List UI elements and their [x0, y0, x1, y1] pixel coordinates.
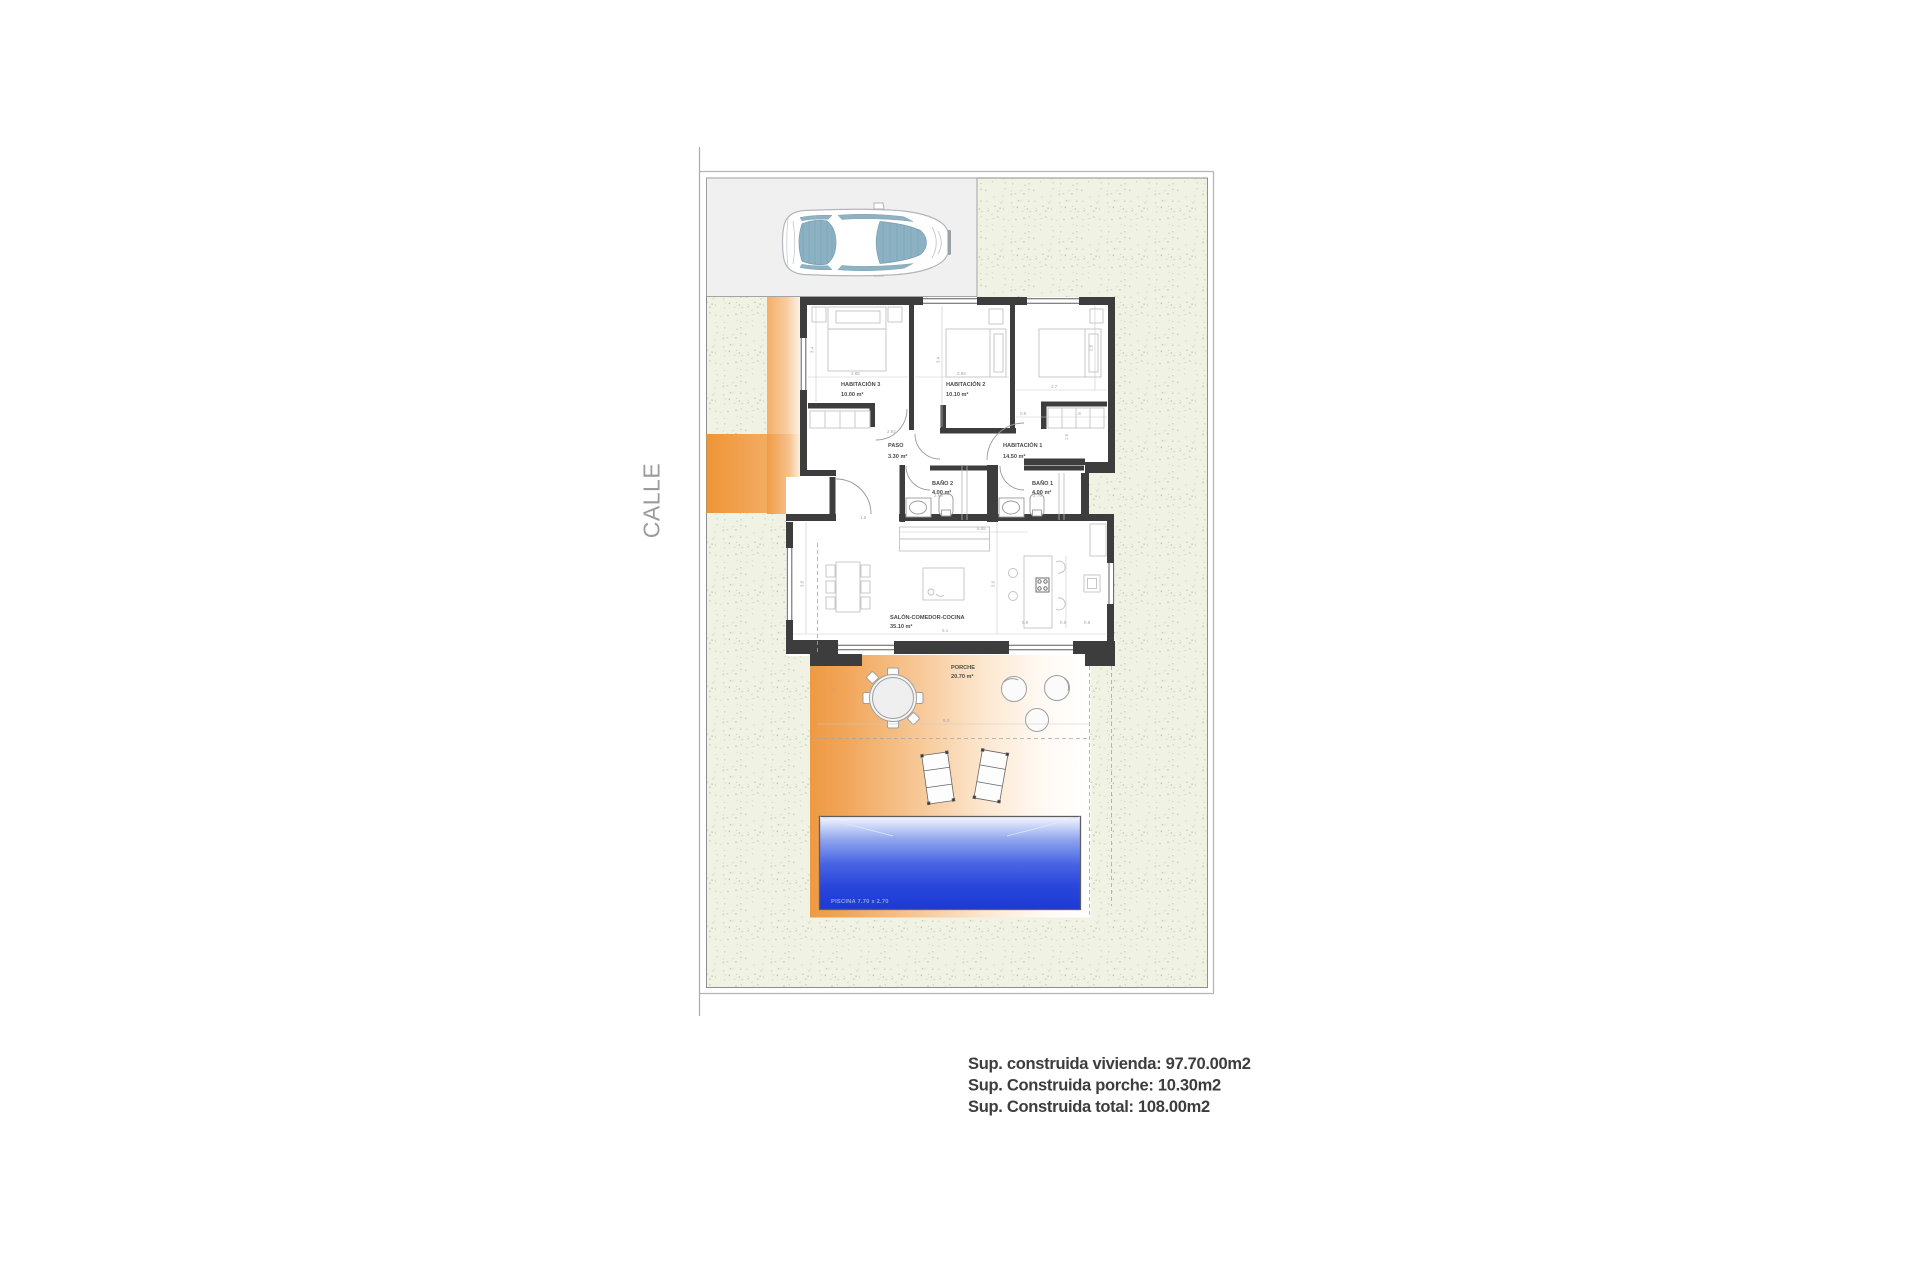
svg-text:Sup. Construida porche: 10.30m: Sup. Construida porche: 10.30m2: [968, 1077, 1221, 1095]
svg-text:PORCHE: PORCHE: [951, 665, 975, 671]
svg-text:3.8: 3.8: [800, 580, 805, 587]
svg-text:3.30 m²: 3.30 m²: [888, 453, 907, 460]
svg-text:0.6: 0.6: [1084, 620, 1091, 625]
svg-text:2.7: 2.7: [1051, 384, 1058, 389]
svg-text:.8: .8: [1077, 411, 1081, 416]
svg-text:3.4: 3.4: [936, 356, 941, 363]
svg-text:10.10 m²: 10.10 m²: [946, 391, 969, 398]
svg-text:1.6: 1.6: [1064, 433, 1069, 440]
svg-text:2.88: 2.88: [851, 371, 860, 376]
svg-text:2.92: 2.92: [887, 429, 896, 434]
svg-text:HABITACIÓN 2: HABITACIÓN 2: [946, 380, 985, 388]
svg-text:PASO: PASO: [888, 443, 904, 449]
svg-text:3.4: 3.4: [810, 346, 815, 353]
svg-text:4.00 m²: 4.00 m²: [1032, 489, 1051, 496]
svg-text:HABITACIÓN 1: HABITACIÓN 1: [1003, 441, 1042, 449]
svg-text:BAÑO 1: BAÑO 1: [1032, 480, 1053, 487]
svg-text:Sup. construida vivienda: 97.7: Sup. construida vivienda: 97.70.00m2: [968, 1055, 1251, 1073]
svg-text:0.9: 0.9: [1060, 620, 1067, 625]
svg-text:9.1: 9.1: [942, 628, 949, 633]
svg-text:1.6: 1.6: [860, 515, 867, 520]
svg-text:4.00 m²: 4.00 m²: [932, 489, 951, 496]
svg-text:HABITACIÓN 3: HABITACIÓN 3: [841, 380, 880, 388]
svg-text:SALÓN-COMEDOR-COCINA: SALÓN-COMEDOR-COCINA: [890, 613, 965, 621]
svg-text:PISCINA 7.70 x 2.70: PISCINA 7.70 x 2.70: [831, 899, 889, 905]
svg-text:2.99: 2.99: [957, 371, 966, 376]
svg-text:10.00 m²: 10.00 m²: [841, 391, 864, 398]
svg-text:3.6: 3.6: [991, 580, 996, 587]
svg-text:2.5: 2.5: [830, 686, 835, 693]
svg-text:8.3: 8.3: [943, 718, 950, 723]
svg-text:BAÑO 2: BAÑO 2: [932, 480, 953, 487]
svg-text:6.55: 6.55: [977, 526, 986, 531]
svg-text:0.9: 0.9: [1022, 620, 1029, 625]
svg-text:2.8: 2.8: [1089, 344, 1094, 351]
svg-text:Sup. Construida total: 108.00m: Sup. Construida total: 108.00m2: [968, 1098, 1210, 1116]
svg-text:20.70 m²: 20.70 m²: [951, 673, 974, 680]
svg-text:CALLE: CALLE: [639, 463, 665, 538]
svg-text:14.50 m²: 14.50 m²: [1003, 453, 1026, 460]
svg-text:35.10 m²: 35.10 m²: [890, 623, 913, 630]
svg-text:0.6: 0.6: [1020, 411, 1027, 416]
